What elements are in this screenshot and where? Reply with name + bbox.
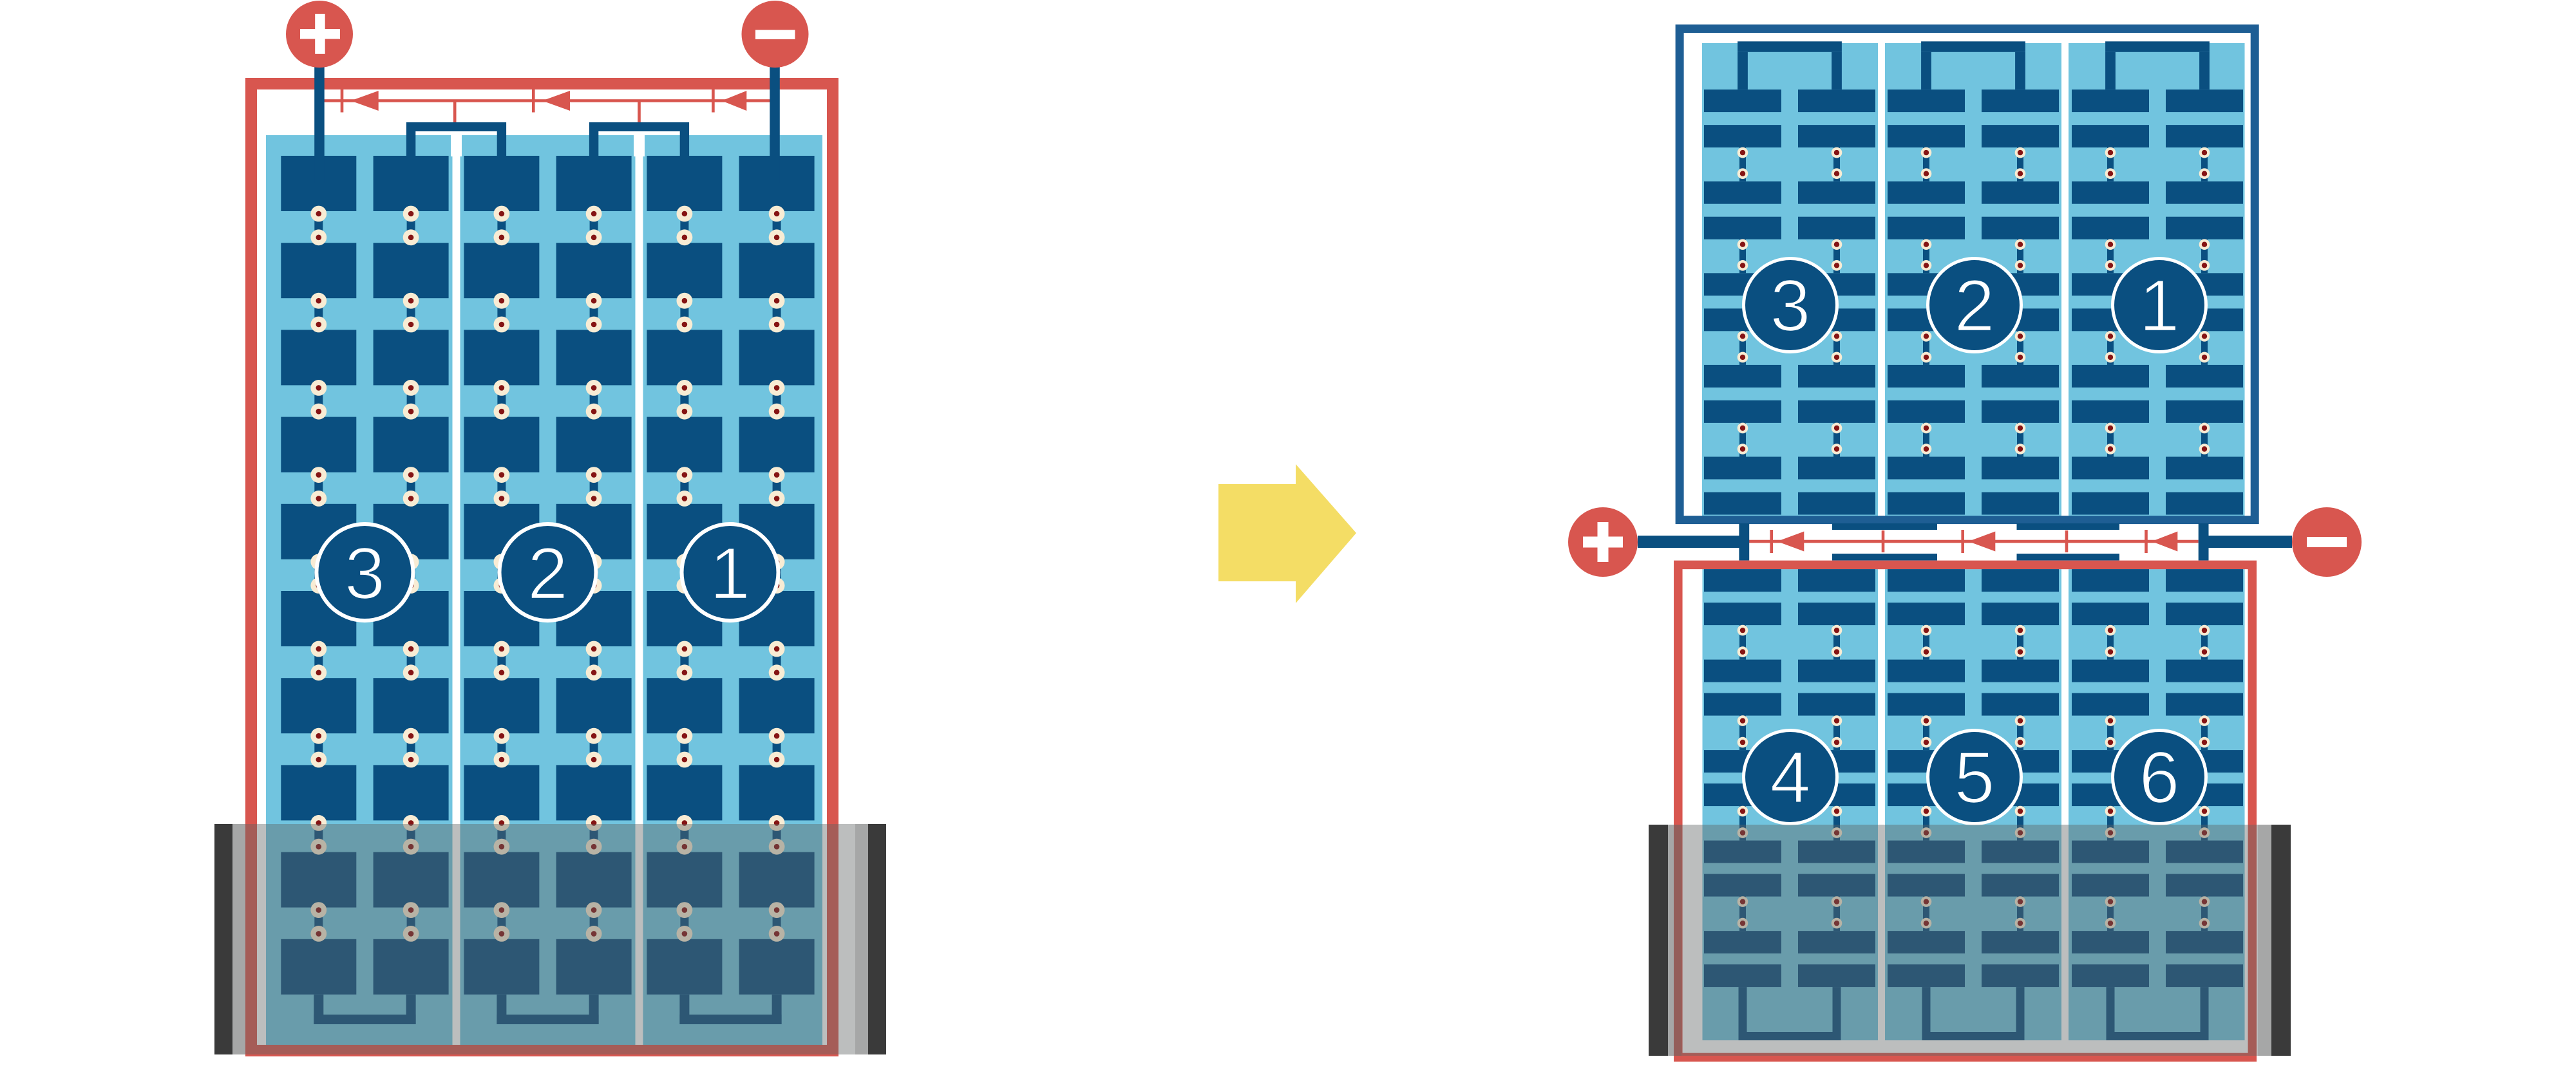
svg-text:3: 3 bbox=[345, 533, 385, 615]
svg-text:2: 2 bbox=[1954, 265, 1994, 347]
svg-text:3: 3 bbox=[1770, 265, 1810, 347]
svg-text:2: 2 bbox=[527, 533, 568, 615]
svg-text:4: 4 bbox=[1770, 737, 1810, 819]
svg-text:1: 1 bbox=[2139, 265, 2179, 347]
svg-text:1: 1 bbox=[710, 533, 750, 615]
svg-text:5: 5 bbox=[1954, 737, 1994, 819]
svg-text:6: 6 bbox=[2139, 737, 2179, 819]
